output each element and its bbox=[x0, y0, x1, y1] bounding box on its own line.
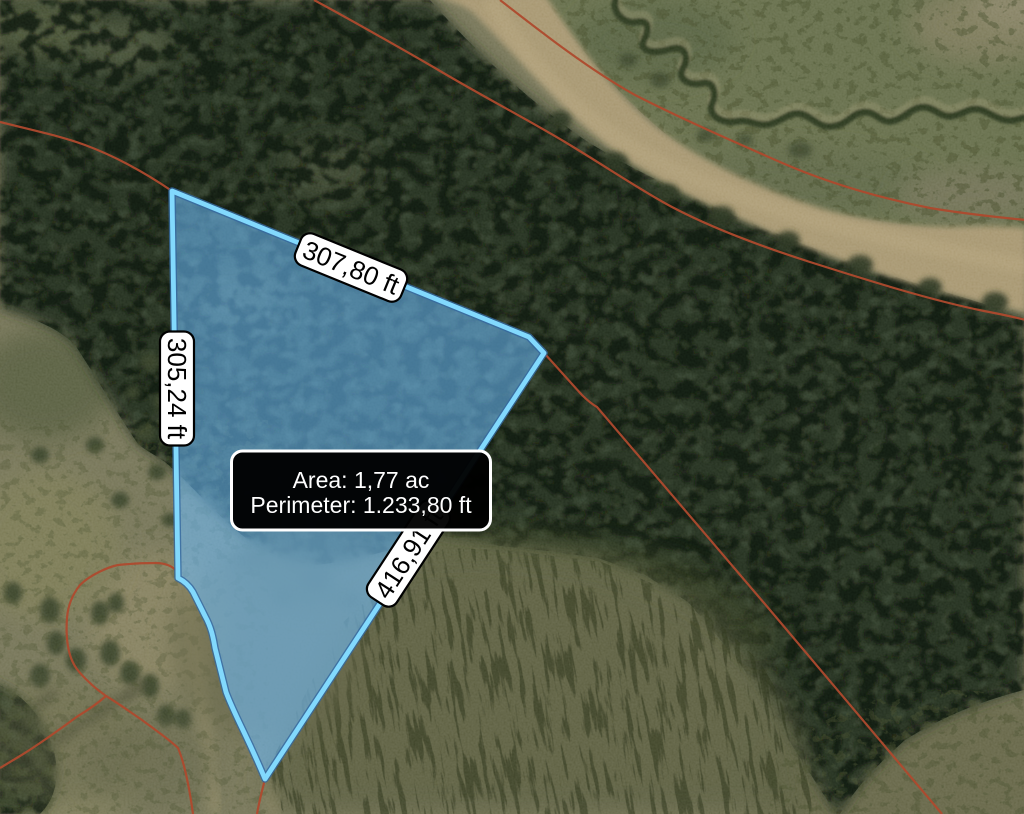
svg-text:Area: 1,77 ac: Area: 1,77 ac bbox=[293, 467, 430, 493]
svg-text:305,24 ft: 305,24 ft bbox=[162, 338, 192, 440]
svg-text:Perimeter: 1.233,80 ft: Perimeter: 1.233,80 ft bbox=[250, 492, 472, 518]
